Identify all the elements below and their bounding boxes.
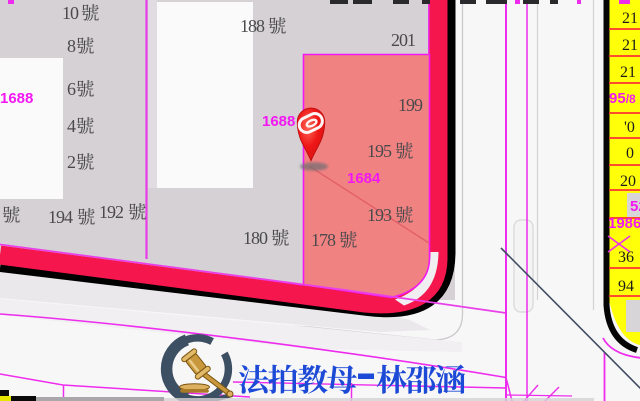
svg-text:36: 36 (618, 249, 634, 266)
svg-text:194: 194 (48, 207, 73, 227)
svg-text:2: 2 (67, 152, 75, 172)
svg-text:1684: 1684 (347, 170, 381, 187)
svg-text:178: 178 (311, 230, 336, 250)
svg-text:201: 201 (391, 30, 415, 50)
svg-text:193: 193 (367, 205, 392, 225)
svg-text:21: 21 (620, 64, 636, 81)
svg-text:20: 20 (620, 173, 636, 190)
svg-text:195: 195 (367, 141, 392, 161)
svg-text:4: 4 (67, 116, 76, 136)
svg-text:95/8: 95/8 (609, 90, 636, 107)
svg-text:94: 94 (618, 278, 634, 295)
svg-text:199: 199 (398, 95, 423, 115)
svg-text:6: 6 (67, 79, 76, 99)
svg-text:'0: '0 (624, 119, 635, 136)
svg-text:192: 192 (99, 202, 123, 222)
svg-text:0: 0 (626, 145, 634, 162)
svg-text:21: 21 (622, 37, 638, 54)
svg-text:8: 8 (67, 36, 76, 56)
svg-text:52: 52 (630, 198, 640, 215)
svg-text:1688: 1688 (0, 90, 33, 107)
svg-text:21: 21 (622, 10, 638, 27)
svg-text:188: 188 (240, 16, 265, 36)
svg-text:180: 180 (243, 228, 268, 248)
svg-text:10: 10 (62, 3, 79, 23)
svg-text:1986: 1986 (608, 215, 640, 232)
svg-text:1688: 1688 (262, 113, 295, 130)
